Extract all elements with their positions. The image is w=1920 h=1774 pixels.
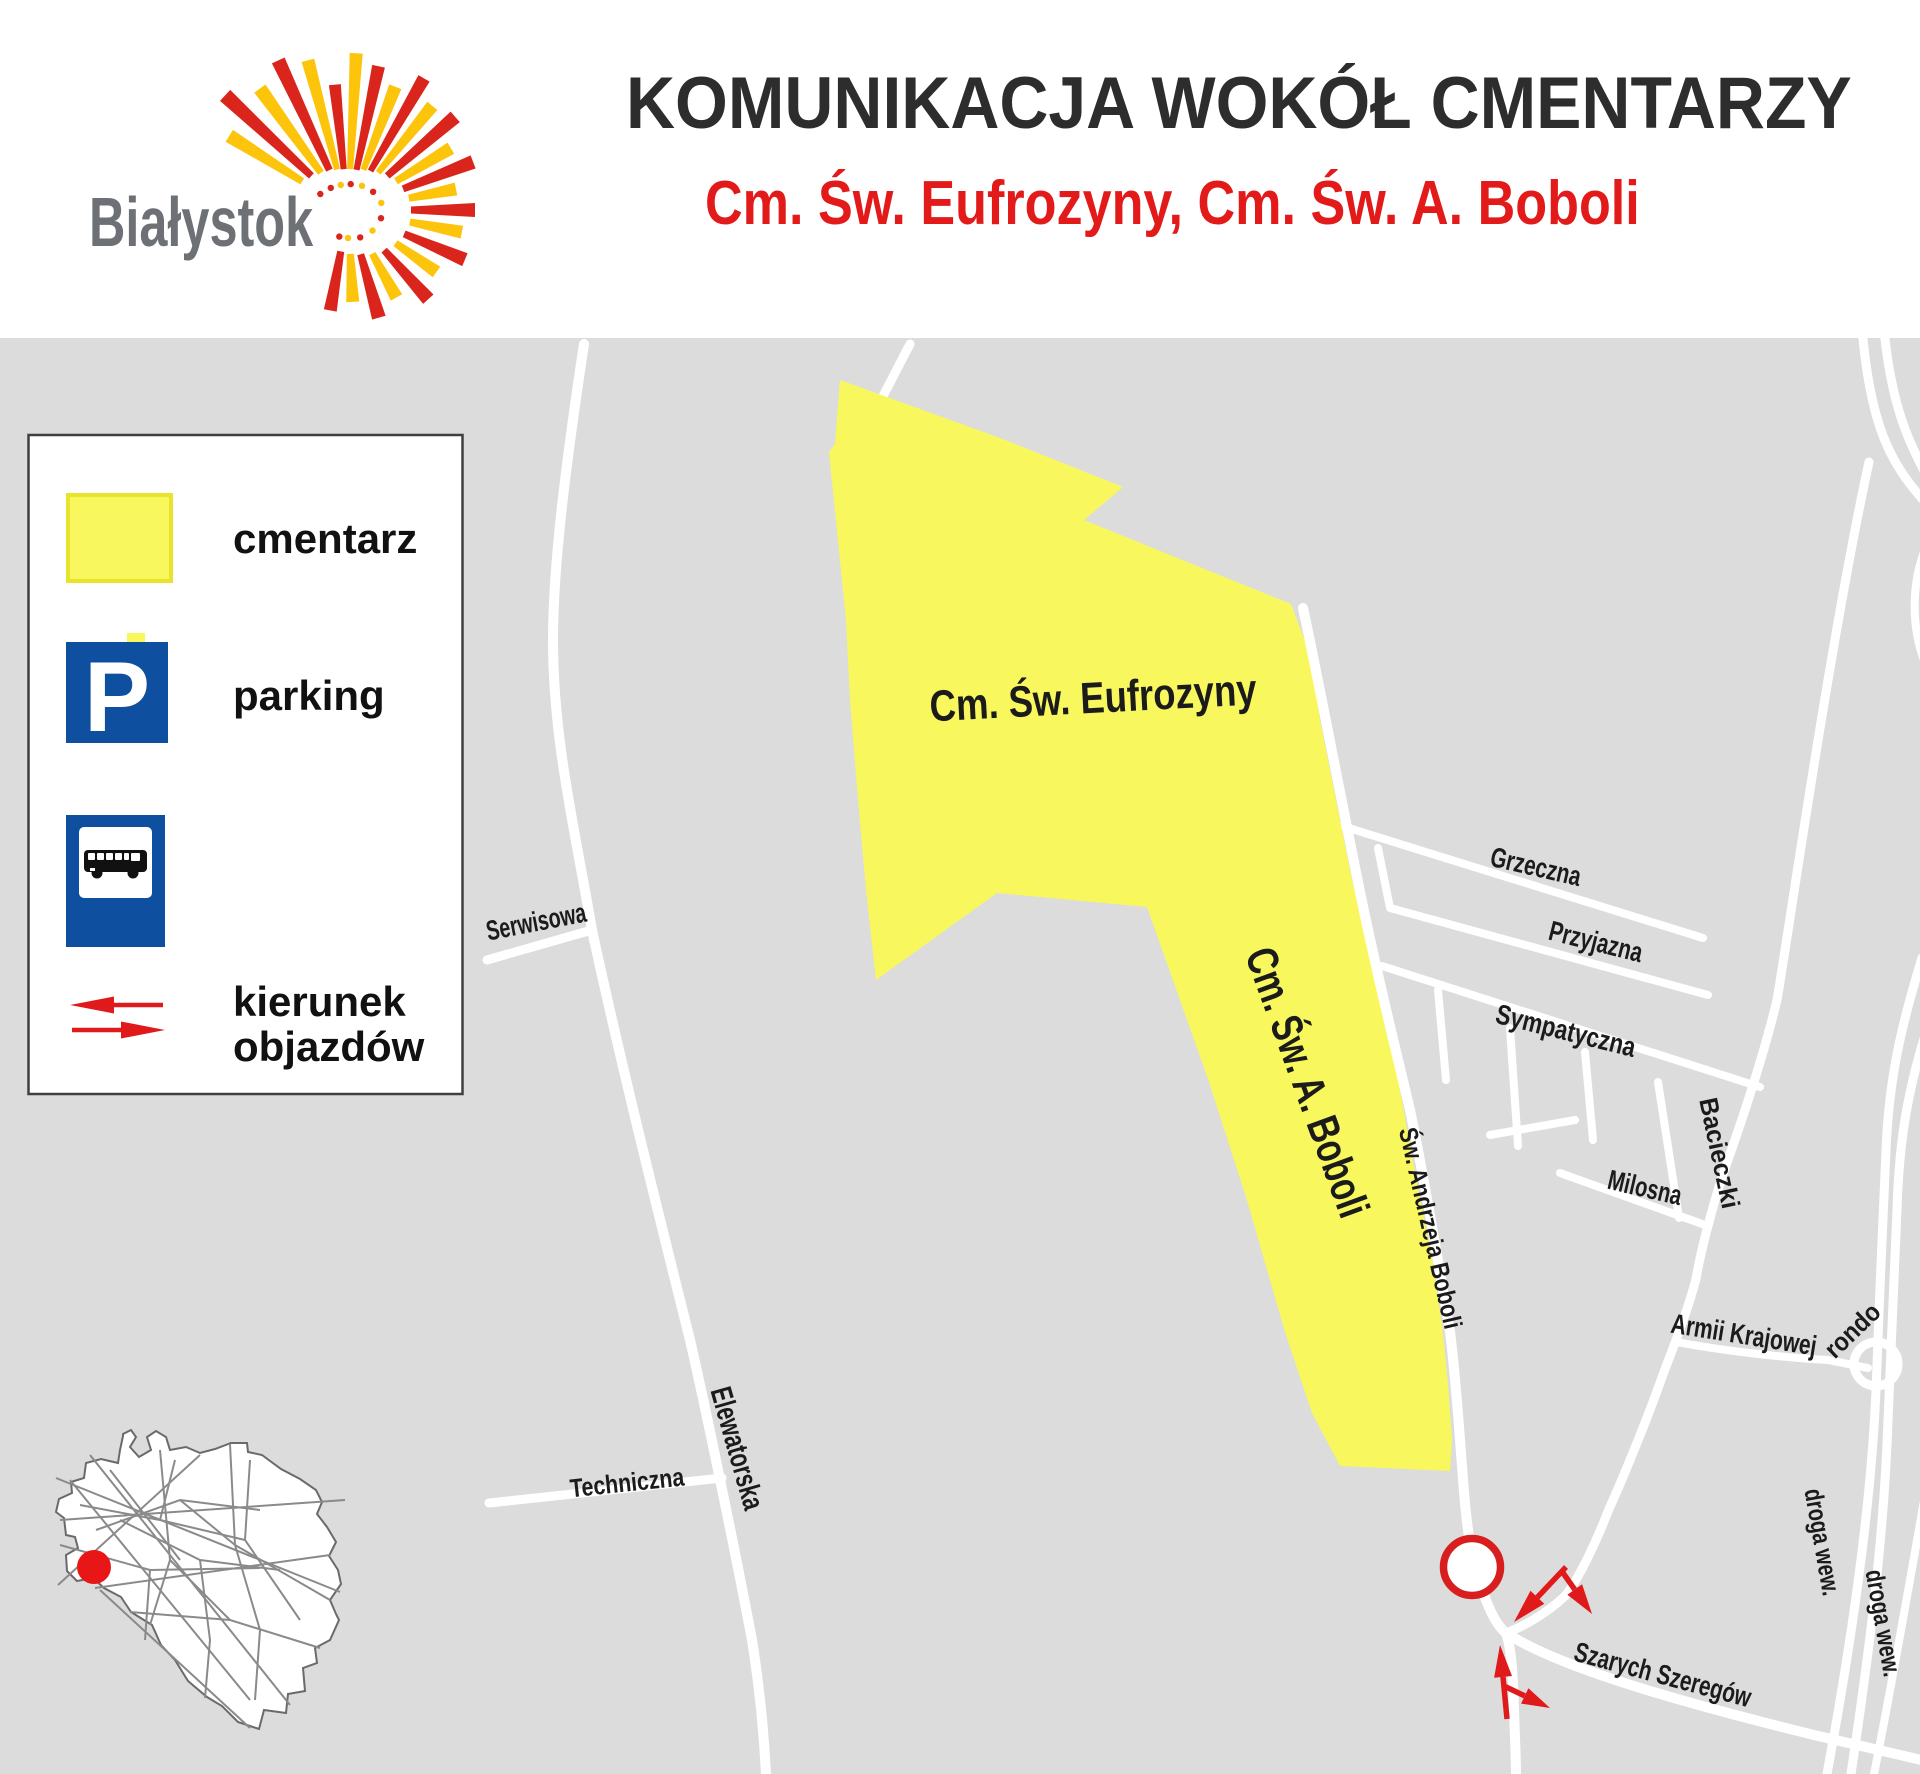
- svg-text:cmentarz: cmentarz: [233, 515, 417, 562]
- svg-text:P: P: [84, 641, 150, 752]
- svg-text:kierunek: kierunek: [233, 978, 406, 1025]
- svg-text:parking: parking: [233, 672, 385, 719]
- svg-text:objazdów: objazdów: [233, 1023, 425, 1070]
